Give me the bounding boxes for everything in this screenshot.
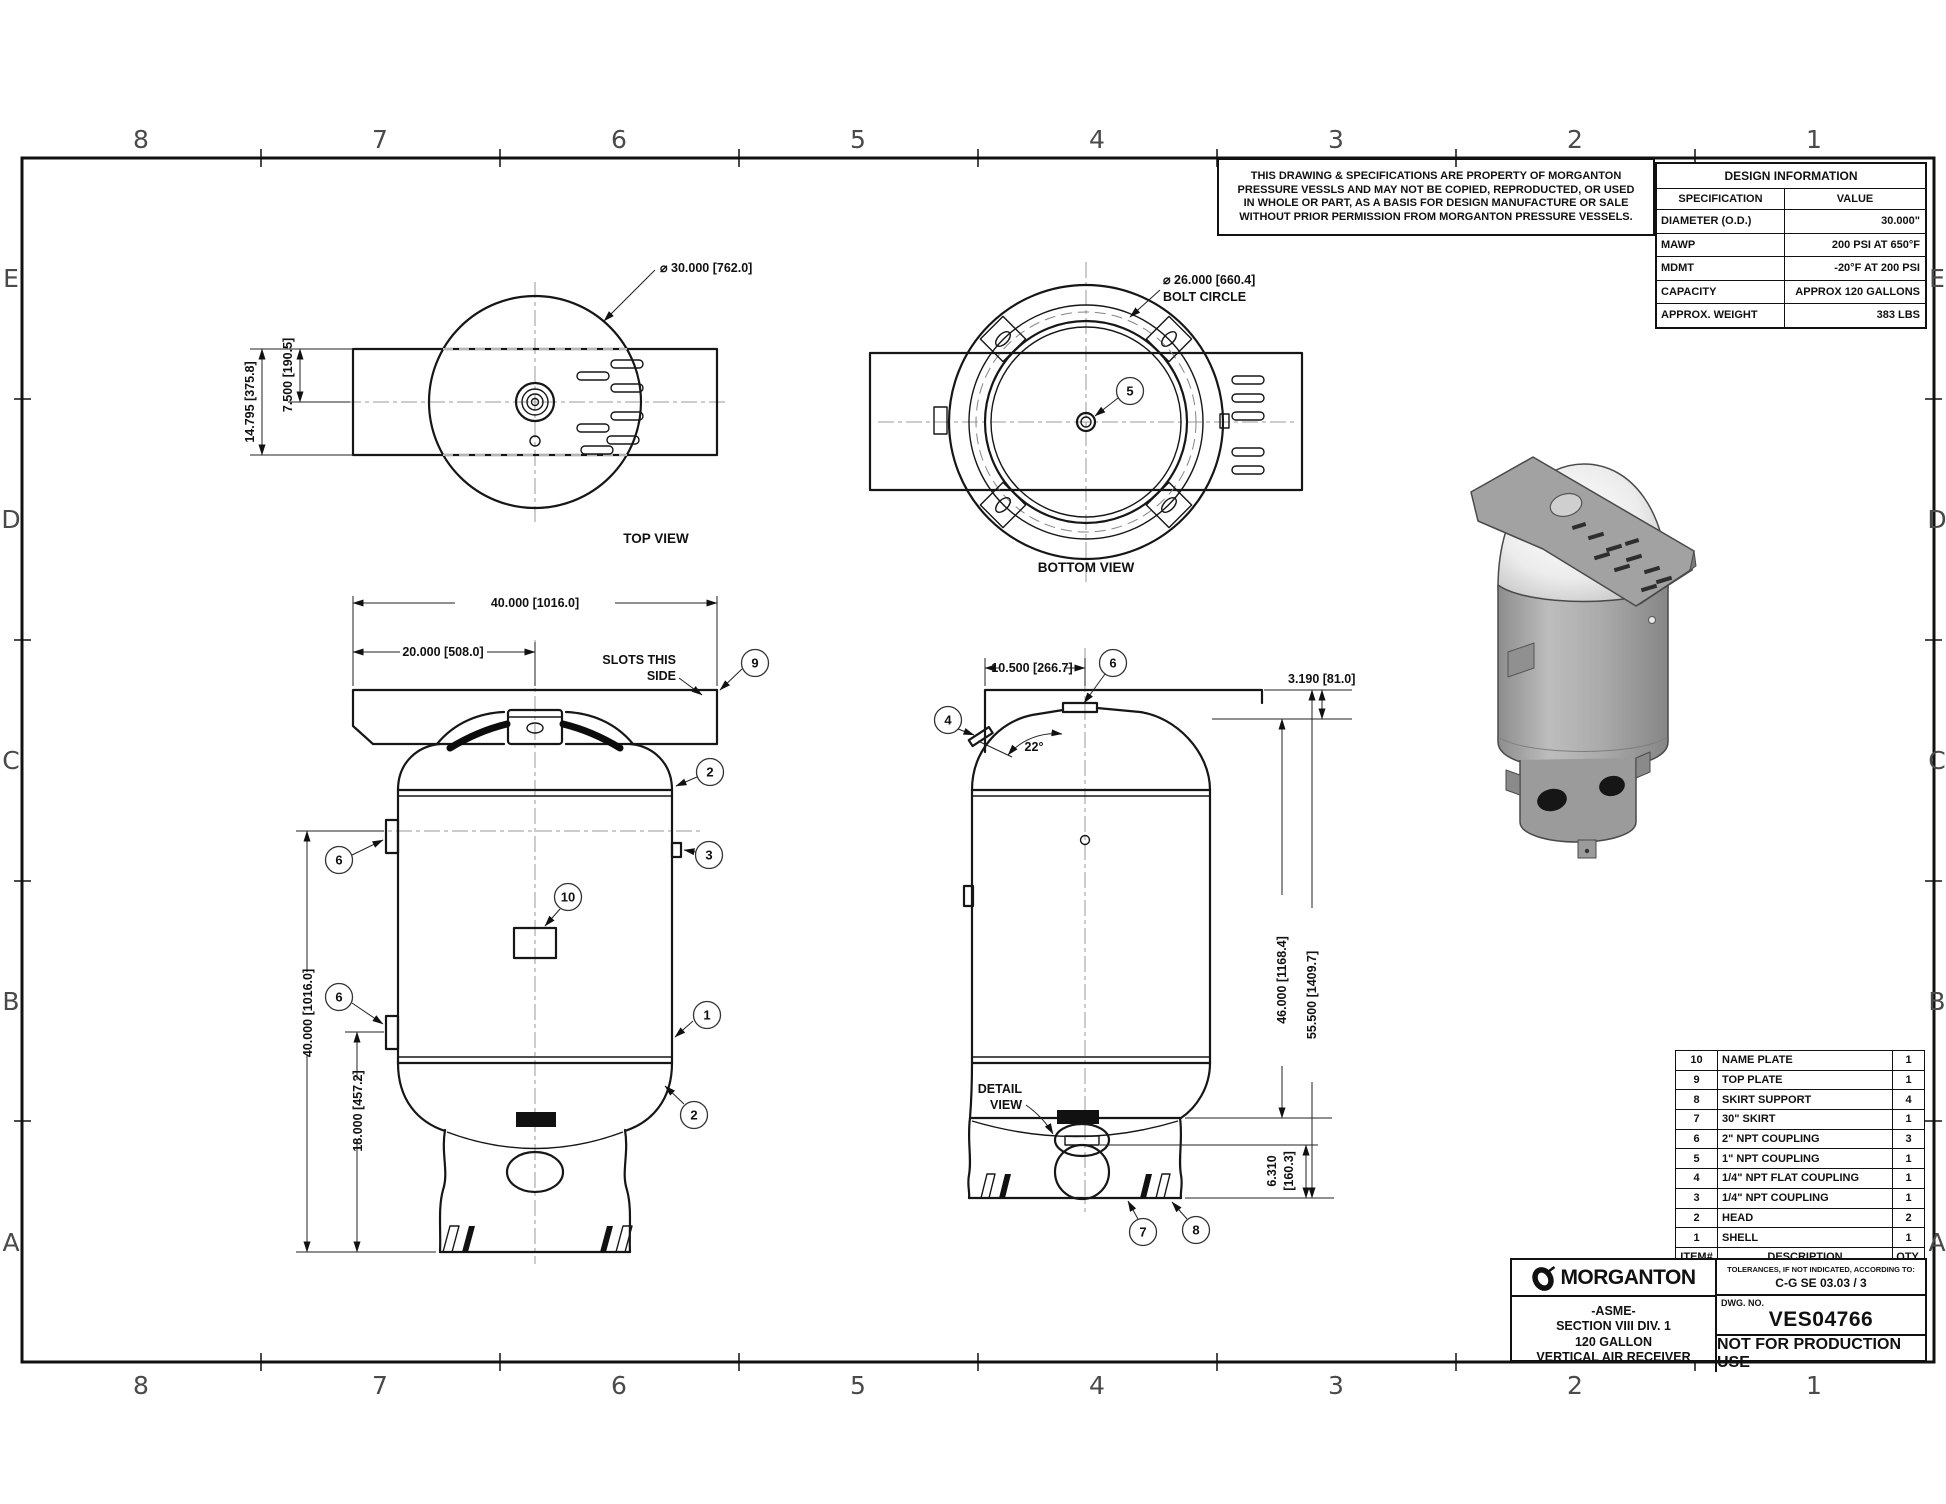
bottom-view-label: BOTTOM VIEW xyxy=(1038,560,1135,575)
balloon-3: 3 xyxy=(696,842,723,869)
part-qty: 1 xyxy=(1893,1228,1924,1247)
balloon-7: 7 xyxy=(1130,1219,1157,1246)
part-qty: 4 xyxy=(1893,1090,1924,1109)
side-view: 10.500 [266.7] 22° 3.190 [81.0] 46.000 [… xyxy=(935,648,1356,1246)
parts-list-table: 10 NAME PLATE 1 9 TOP PLATE 1 8 SKIRT SU… xyxy=(1675,1050,1925,1268)
part-item: 5 xyxy=(1676,1149,1718,1168)
part-qty: 2 xyxy=(1893,1209,1924,1228)
iso-support-tab xyxy=(1506,770,1520,795)
tolerances-value: C-G SE 03.03 / 3 xyxy=(1775,1276,1866,1290)
title-block: MORGANTON -ASME- SECTION VIII DIV. 1 120… xyxy=(1510,1258,1927,1362)
dim-side-angle: 22° xyxy=(1025,740,1044,754)
spec-name: DIAMETER (O.D.) xyxy=(1657,210,1785,233)
bottom-plate-slots xyxy=(1232,376,1264,474)
drawing-sheet: 8 7 6 5 4 3 2 1 8 7 6 5 4 3 2 1 E D C B … xyxy=(0,0,1946,1504)
front-view: 40.000 [1016.0] 20.000 [508.0] 40.000 [1… xyxy=(296,596,769,1264)
side-bottom-head-left xyxy=(970,1063,972,1118)
balloon-2-number: 2 xyxy=(706,765,713,780)
part-description: SHELL xyxy=(1718,1228,1893,1247)
spec-value: -20°F AT 200 PSI xyxy=(1785,257,1925,280)
grid-row-label: D xyxy=(1,505,20,534)
tolerances-cell: TOLERANCES, IF NOT INDICATED, ACCORDING … xyxy=(1717,1260,1925,1296)
top-view-label: TOP VIEW xyxy=(623,531,689,546)
brand-name: MORGANTON xyxy=(1560,1266,1695,1290)
bottom-right-fitting xyxy=(1220,414,1229,428)
top-view: 7.500 [190.5] 14.795 [375.8] ⌀ 30.000 [7… xyxy=(243,261,752,546)
front-skirt-right xyxy=(625,1130,630,1252)
grid-col-label: 8 xyxy=(133,1371,149,1400)
detail-lower xyxy=(1055,1145,1109,1199)
side-drain-weld xyxy=(1057,1110,1099,1124)
balloon-7-number: 7 xyxy=(1139,1225,1146,1240)
dim-top-plate-height: 14.795 [375.8] xyxy=(243,361,257,442)
parts-row: 9 TOP PLATE 1 xyxy=(1676,1071,1924,1091)
product-description: -ASME- SECTION VIII DIV. 1 120 GALLON VE… xyxy=(1512,1297,1715,1372)
grid-col-label: 4 xyxy=(1089,1371,1105,1400)
part-description: 30" SKIRT xyxy=(1718,1110,1893,1129)
dim-side-skirt-b: [160.3] xyxy=(1282,1151,1296,1191)
drawing-number-cell: DWG. NO. VES04766 xyxy=(1717,1296,1925,1336)
dim-side-overall: 55.500 [1409.7] xyxy=(1305,951,1319,1039)
iso-port xyxy=(1649,617,1656,624)
part-item: 7 xyxy=(1676,1110,1718,1129)
notice-line: WITHOUT PRIOR PERMISSION FROM MORGANTON … xyxy=(1219,211,1653,225)
grid-row-label: D xyxy=(1927,505,1946,534)
part-qty: 1 xyxy=(1893,1169,1924,1188)
dim-front-plate-width: 40.000 [1016.0] xyxy=(491,596,579,610)
balloon-8-number: 8 xyxy=(1192,1223,1199,1238)
parts-row: 10 NAME PLATE 1 xyxy=(1676,1051,1924,1071)
part-description: NAME PLATE xyxy=(1718,1051,1893,1070)
part-qty: 1 xyxy=(1893,1071,1924,1090)
balloon-10-number: 10 xyxy=(561,890,575,905)
grid-row-label: C xyxy=(2,746,19,775)
spec-name: MAWP xyxy=(1657,234,1785,257)
grid-col-label: 3 xyxy=(1328,1371,1344,1400)
bottom-left-fitting xyxy=(934,407,947,434)
detail-upper xyxy=(1055,1124,1109,1156)
design-info-col-spec: SPECIFICATION xyxy=(1657,189,1785,209)
balloon-4: 4 xyxy=(935,707,962,734)
part-qty: 1 xyxy=(1893,1149,1924,1168)
detail-view-line2: VIEW xyxy=(990,1098,1022,1112)
grid-row-label: A xyxy=(2,1228,19,1257)
product-line: 120 GALLON xyxy=(1575,1335,1652,1351)
grid-col-label: 4 xyxy=(1089,125,1105,154)
spec-name: APPROX. WEIGHT xyxy=(1657,304,1785,327)
dim-front-lower: 18.000 [457.2] xyxy=(351,1070,365,1151)
balloon-3-number: 3 xyxy=(705,848,712,863)
front-head-left xyxy=(398,744,440,790)
notice-line: PRESSURE VESSLS AND MAY NOT BE COPIED, R… xyxy=(1219,184,1653,198)
dwg-no-value: VES04766 xyxy=(1717,1308,1925,1332)
spec-value: 383 LBS xyxy=(1785,304,1925,327)
grid-col-label: 2 xyxy=(1567,125,1583,154)
balloon-6-side: 6 xyxy=(1100,650,1127,677)
detail-view-line1: DETAIL xyxy=(978,1082,1023,1096)
grid-col-label: 6 xyxy=(611,1371,627,1400)
part-qty: 1 xyxy=(1893,1051,1924,1070)
balloon-6-upper: 6 xyxy=(326,847,353,874)
part-qty: 1 xyxy=(1893,1189,1924,1208)
part-description: 1" NPT COUPLING xyxy=(1718,1149,1893,1168)
balloon-2-top: 2 xyxy=(697,759,724,786)
grid-row-label: E xyxy=(3,264,19,293)
company-logo: MORGANTON xyxy=(1512,1260,1715,1297)
part-qty: 1 xyxy=(1893,1110,1924,1129)
front-view-dims: 40.000 [1016.0] 20.000 [508.0] 40.000 [1… xyxy=(296,596,717,1252)
front-coupling-lower-left xyxy=(386,1016,398,1049)
grid-col-label: 2 xyxy=(1567,1371,1583,1400)
design-info-row: DIAMETER (O.D.) 30.000" xyxy=(1657,210,1925,234)
morganton-logo-icon xyxy=(1531,1265,1557,1291)
dim-side-skirt-a: 6.310 xyxy=(1265,1155,1279,1186)
design-info-row: APPROX. WEIGHT 383 LBS xyxy=(1657,304,1925,327)
balloon-5-number: 5 xyxy=(1126,384,1133,399)
parts-row: 2 HEAD 2 xyxy=(1676,1209,1924,1229)
grid-col-label: 3 xyxy=(1328,125,1344,154)
front-bottom-head-right xyxy=(625,1063,672,1131)
part-description: SKIRT SUPPORT xyxy=(1718,1090,1893,1109)
parts-row: 8 SKIRT SUPPORT 4 xyxy=(1676,1090,1924,1110)
part-item: 2 xyxy=(1676,1209,1718,1228)
grid-row-label: A xyxy=(1928,1228,1945,1257)
notice-line: THIS DRAWING & SPECIFICATIONS ARE PROPER… xyxy=(1219,170,1653,184)
balloon-6-number: 6 xyxy=(1109,656,1116,671)
side-skirt-right xyxy=(1180,1118,1182,1198)
balloon-4-number: 4 xyxy=(944,713,952,728)
part-item: 10 xyxy=(1676,1051,1718,1070)
grid-col-label: 8 xyxy=(133,125,149,154)
dim-bolt-circle: ⌀ 26.000 [660.4] xyxy=(1163,273,1255,287)
grid-row-label: C xyxy=(1928,746,1945,775)
grid-col-label: 6 xyxy=(611,125,627,154)
balloon-5: 5 xyxy=(1117,378,1144,405)
balloon-1-number: 1 xyxy=(703,1008,710,1023)
front-skirt-vents xyxy=(443,1226,632,1252)
design-info-title: DESIGN INFORMATION xyxy=(1657,164,1925,189)
parts-row: 6 2" NPT COUPLING 3 xyxy=(1676,1130,1924,1150)
side-top-pad xyxy=(1063,703,1097,712)
balloon-2-number: 2 xyxy=(690,1108,697,1123)
grid-col-label: 1 xyxy=(1806,125,1822,154)
part-description: 2" NPT COUPLING xyxy=(1718,1130,1893,1149)
balloon-6-number: 6 xyxy=(335,853,342,868)
iso-shell xyxy=(1498,585,1668,770)
grid-col-label: 5 xyxy=(850,1371,866,1400)
dim-side-shell: 46.000 [1168.4] xyxy=(1275,936,1289,1024)
front-bottom-head-left xyxy=(398,1063,445,1131)
spec-name: CAPACITY xyxy=(1657,281,1785,304)
design-info-row: MAWP 200 PSI AT 650°F xyxy=(1657,234,1925,258)
design-information-table: DESIGN INFORMATION SPECIFICATION VALUE D… xyxy=(1655,162,1927,329)
part-qty: 3 xyxy=(1893,1130,1924,1149)
balloon-6-number: 6 xyxy=(335,990,342,1005)
balloon-2-bottom: 2 xyxy=(681,1102,708,1129)
product-line: VERTICAL AIR RECEIVER xyxy=(1536,1350,1690,1366)
part-item: 9 xyxy=(1676,1071,1718,1090)
front-head-right xyxy=(630,744,672,790)
balloon-10: 10 xyxy=(555,884,582,911)
property-notice: THIS DRAWING & SPECIFICATIONS ARE PROPER… xyxy=(1217,158,1655,236)
part-item: 8 xyxy=(1676,1090,1718,1109)
tolerances-label: TOLERANCES, IF NOT INDICATED, ACCORDING … xyxy=(1727,1265,1915,1274)
parts-row: 1 SHELL 1 xyxy=(1676,1228,1924,1248)
grid-row-label: B xyxy=(2,987,19,1016)
parts-row: 4 1/4" NPT FLAT COUPLING 1 xyxy=(1676,1169,1924,1189)
slots-note-line2: SIDE xyxy=(647,669,676,683)
part-description: 1/4" NPT COUPLING xyxy=(1718,1189,1893,1208)
dim-front-height: 40.000 [1016.0] xyxy=(301,969,315,1057)
grid-col-label: 7 xyxy=(372,125,388,154)
side-skirt-left xyxy=(968,1118,970,1198)
grid-col-label: 1 xyxy=(1806,1371,1822,1400)
top-view-dims: 7.500 [190.5] 14.795 [375.8] ⌀ 30.000 [7… xyxy=(243,261,752,455)
part-description: HEAD xyxy=(1718,1209,1893,1228)
dim-front-plate-half: 20.000 [508.0] xyxy=(402,645,483,659)
product-line: SECTION VIII DIV. 1 xyxy=(1556,1319,1671,1335)
grid-col-label: 5 xyxy=(850,125,866,154)
grid-col-label: 7 xyxy=(372,1371,388,1400)
dim-side-top: 10.500 [266.7] xyxy=(991,661,1072,675)
part-description: 1/4" NPT FLAT COUPLING xyxy=(1718,1169,1893,1188)
balloon-6-lower: 6 xyxy=(326,984,353,1011)
part-item: 1 xyxy=(1676,1228,1718,1247)
spec-value: 200 PSI AT 650°F xyxy=(1785,234,1925,257)
design-info-row: MDMT -20°F AT 200 PSI xyxy=(1657,257,1925,281)
balloon-9: 9 xyxy=(742,650,769,677)
grid-row-label: E xyxy=(1929,264,1945,293)
part-item: 3 xyxy=(1676,1189,1718,1208)
spec-value: 30.000" xyxy=(1785,210,1925,233)
side-flat-coupling xyxy=(969,727,993,746)
parts-row: 7 30" SKIRT 1 xyxy=(1676,1110,1924,1130)
front-skirt-left xyxy=(440,1130,445,1252)
isometric-view xyxy=(1471,457,1696,858)
production-status: NOT FOR PRODUCTION USE xyxy=(1717,1336,1925,1372)
dim-top-offset: 7.500 [190.5] xyxy=(281,338,295,412)
product-line: -ASME- xyxy=(1591,1304,1635,1320)
bottom-view: 5 ⌀ 26.000 [660.4] BOLT CIRCLE BOTTOM VI… xyxy=(870,262,1302,582)
design-info-row: CAPACITY APPROX 120 GALLONS xyxy=(1657,281,1925,305)
parts-row: 3 1/4" NPT COUPLING 1 xyxy=(1676,1189,1924,1209)
notice-line: IN WHOLE OR PART, AS A BASIS FOR DESIGN … xyxy=(1219,197,1653,211)
bolt-circle-label: BOLT CIRCLE xyxy=(1163,290,1246,304)
side-bottom-head-right xyxy=(1181,1063,1210,1118)
side-skirt-vents xyxy=(981,1174,1170,1198)
front-coupling-right xyxy=(672,843,681,857)
balloon-1: 1 xyxy=(694,1002,721,1029)
spec-name: MDMT xyxy=(1657,257,1785,280)
dim-top-diameter: ⌀ 30.000 [762.0] xyxy=(660,261,752,275)
design-info-col-value: VALUE xyxy=(1785,189,1925,209)
front-coupling-upper-left xyxy=(386,820,398,853)
slots-note-line1: SLOTS THIS xyxy=(602,653,676,667)
balloon-8: 8 xyxy=(1183,1217,1210,1244)
dwg-no-label: DWG. NO. xyxy=(1721,1298,1764,1308)
part-item: 4 xyxy=(1676,1169,1718,1188)
part-description: TOP PLATE xyxy=(1718,1071,1893,1090)
balloon-9-number: 9 xyxy=(751,656,758,671)
grid-row-label: B xyxy=(1928,987,1945,1016)
front-drain-weld xyxy=(516,1112,556,1127)
side-head-right xyxy=(1097,708,1210,790)
dim-side-plate-rise: 3.190 [81.0] xyxy=(1288,672,1355,686)
part-item: 6 xyxy=(1676,1130,1718,1149)
parts-row: 5 1" NPT COUPLING 1 xyxy=(1676,1149,1924,1169)
spec-value: APPROX 120 GALLONS xyxy=(1785,281,1925,304)
